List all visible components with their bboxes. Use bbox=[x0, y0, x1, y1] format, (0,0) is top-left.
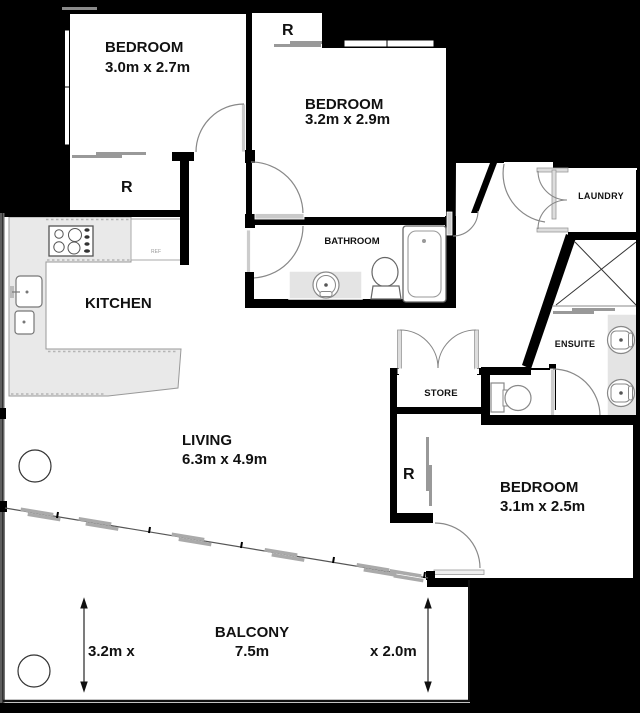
svg-text:REF: REF bbox=[151, 249, 161, 255]
svg-text:3.2m x 2.9m: 3.2m x 2.9m bbox=[305, 111, 390, 128]
svg-text:BEDROOM: BEDROOM bbox=[500, 479, 578, 496]
svg-text:ENSUITE: ENSUITE bbox=[555, 339, 595, 349]
svg-text:BATHROOM: BATHROOM bbox=[324, 236, 379, 247]
svg-text:LAUNDRY: LAUNDRY bbox=[578, 191, 624, 201]
svg-text:3.2m x: 3.2m x bbox=[88, 643, 135, 660]
svg-text:6.3m x 4.9m: 6.3m x 4.9m bbox=[182, 451, 267, 468]
svg-text:KITCHEN: KITCHEN bbox=[85, 295, 152, 312]
svg-text:R: R bbox=[403, 466, 415, 483]
svg-text:BEDROOM: BEDROOM bbox=[105, 39, 183, 56]
svg-text:R: R bbox=[121, 179, 133, 196]
svg-text:x 2.0m: x 2.0m bbox=[370, 643, 417, 660]
svg-text:3.1m x 2.5m: 3.1m x 2.5m bbox=[500, 498, 585, 515]
svg-text:3.0m x 2.7m: 3.0m x 2.7m bbox=[105, 59, 190, 76]
svg-text:7.5m: 7.5m bbox=[235, 643, 269, 660]
svg-text:R: R bbox=[282, 22, 294, 39]
svg-text:BALCONY: BALCONY bbox=[215, 624, 289, 641]
svg-text:STORE: STORE bbox=[424, 388, 458, 399]
svg-text:LIVING: LIVING bbox=[182, 432, 232, 449]
